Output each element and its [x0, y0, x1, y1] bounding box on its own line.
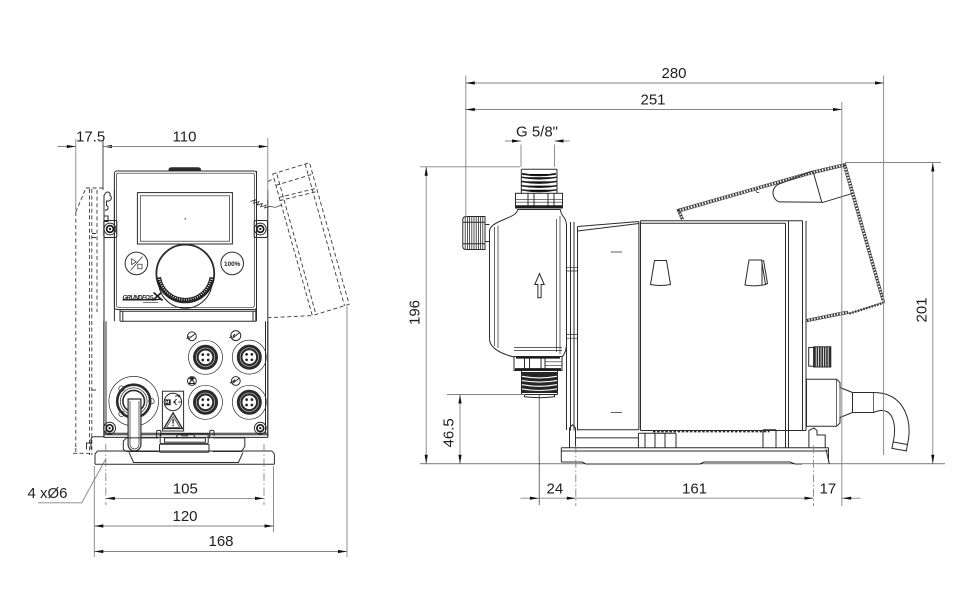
svg-text:201: 201 — [913, 297, 930, 322]
svg-text:24: 24 — [547, 480, 564, 497]
svg-text:17.5: 17.5 — [76, 129, 105, 146]
svg-text:120: 120 — [173, 508, 198, 525]
svg-text:105: 105 — [173, 481, 198, 498]
svg-text:46.5: 46.5 — [440, 418, 457, 447]
svg-text:110: 110 — [173, 129, 197, 146]
svg-text:251: 251 — [641, 92, 666, 109]
svg-text:G 5/8": G 5/8" — [516, 123, 558, 140]
svg-text:161: 161 — [682, 480, 707, 497]
svg-text:280: 280 — [662, 65, 687, 82]
svg-text:100%: 100% — [224, 261, 241, 268]
svg-text:4 xØ6: 4 xØ6 — [28, 485, 68, 502]
svg-text:168: 168 — [209, 533, 234, 550]
svg-text:GRUNDFOS: GRUNDFOS — [123, 296, 154, 302]
svg-text:17: 17 — [820, 480, 837, 497]
svg-text:196: 196 — [407, 300, 424, 325]
